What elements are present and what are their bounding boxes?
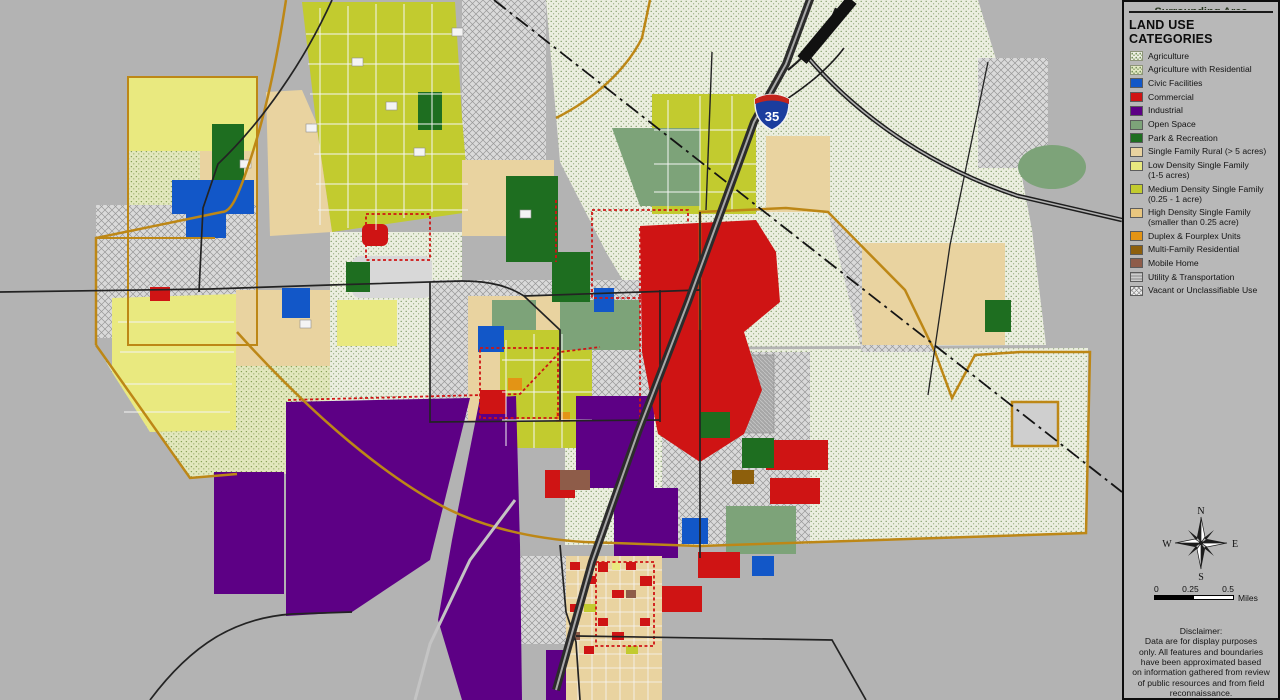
legend-label: Multi-Family Residential [1148,244,1239,254]
scale-tick-05: 0.5 [1222,584,1234,594]
compass-west-label: W [1162,539,1172,550]
legend-item: Utility & Transportation [1130,270,1276,284]
legend-item: Single Family Rural (> 5 acres) [1130,145,1276,159]
legend-swatch-mobile-home [1130,258,1143,268]
compass-rose: N S W E [1155,505,1247,581]
legend-item: Duplex & Fourplex Units [1130,229,1276,243]
panel-clipped-title: Surrounding Area [1124,2,1278,10]
legend-item: Commercial [1130,90,1276,104]
legend-swatch-vacant-or-unclassifiable-use [1130,286,1143,296]
legend-item: Low Density Single Family(1-5 acres) [1130,159,1276,182]
scale-segment-empty [1194,596,1233,599]
legend-swatch-multi-family-residential [1130,245,1143,255]
legend-label: Mobile Home [1148,258,1199,268]
scale-tick-0: 0 [1154,584,1159,594]
legend-item: Park & Recreation [1130,131,1276,145]
legend-item: High Density Single Family(smaller than … [1130,205,1276,228]
legend-swatch-low-density-single-family [1130,161,1143,171]
scale-tick-025: 0.25 [1182,584,1199,594]
legend-item: Open Space [1130,117,1276,131]
legend-label: Medium Density Single Family(0.25 - 1 ac… [1148,184,1264,204]
scale-bar: 0 0.25 0.5 Miles [1154,584,1266,600]
legend-panel: Surrounding Area LAND USE CATEGORIES Agr… [1122,0,1280,700]
scale-unit-label: Miles [1238,593,1258,603]
land-use-map-page: 35 Surrounding Area LAND USE CATEGORIES … [0,0,1280,700]
legend-label: Utility & Transportation [1148,272,1234,282]
legend-label: Low Density Single Family(1-5 acres) [1148,160,1249,180]
legend-items: AgricultureAgriculture with ResidentialC… [1130,49,1276,297]
legend-swatch-civic-facilities [1130,78,1143,88]
disclaimer-text: Disclaimer: Data are for display purpose… [1128,626,1274,698]
legend-swatch-single-family-rural-5-acres [1130,147,1143,157]
legend-label: Single Family Rural (> 5 acres) [1148,146,1266,156]
divider-line [1129,11,1273,13]
shield-number: 35 [765,109,779,124]
scale-segment-filled [1155,596,1194,599]
legend-swatch-park-recreation [1130,133,1143,143]
legend-item: Mobile Home [1130,256,1276,270]
scale-bar-graphic [1154,595,1234,600]
compass-north-label: N [1197,506,1204,517]
compass-south-label: S [1198,572,1204,581]
legend-item: Agriculture [1130,49,1276,63]
scale-ticks: 0 0.25 0.5 [1154,584,1234,594]
legend-label: Industrial [1148,105,1183,115]
legend-item: Medium Density Single Family(0.25 - 1 ac… [1130,182,1276,205]
legend-swatch-commercial [1130,92,1143,102]
legend-label: Commercial [1148,92,1194,102]
compass-east-label: E [1232,539,1238,550]
legend-label: Park & Recreation [1148,133,1218,143]
legend-label: Duplex & Fourplex Units [1148,231,1241,241]
legend-swatch-agriculture-with-residential [1130,65,1143,75]
legend-swatch-open-space [1130,120,1143,130]
legend-label: Agriculture with Residential [1148,64,1252,74]
legend-item: Multi-Family Residential [1130,243,1276,257]
legend-swatch-duplex-fourplex-units [1130,231,1143,241]
legend-swatch-industrial [1130,106,1143,116]
map-canvas: 35 [0,0,1122,700]
legend-label: Agriculture [1148,51,1189,61]
legend-title: LAND USE CATEGORIES [1129,18,1274,46]
downtown-grid [566,556,662,700]
legend-swatch-agriculture [1130,51,1143,61]
legend-item: Vacant or Unclassifiable Use [1130,284,1276,298]
legend-swatch-high-density-single-family [1130,208,1143,218]
legend-swatch-medium-density-single-family [1130,184,1143,194]
legend-item: Civic Facilities [1130,76,1276,90]
legend-label: Open Space [1148,119,1196,129]
legend-label: High Density Single Family(smaller than … [1148,207,1251,227]
legend-label: Vacant or Unclassifiable Use [1148,285,1257,295]
legend-item: Agriculture with Residential [1130,63,1276,77]
legend-swatch-utility-transportation [1130,272,1143,282]
legend-item: Industrial [1130,104,1276,118]
legend-label: Civic Facilities [1148,78,1202,88]
